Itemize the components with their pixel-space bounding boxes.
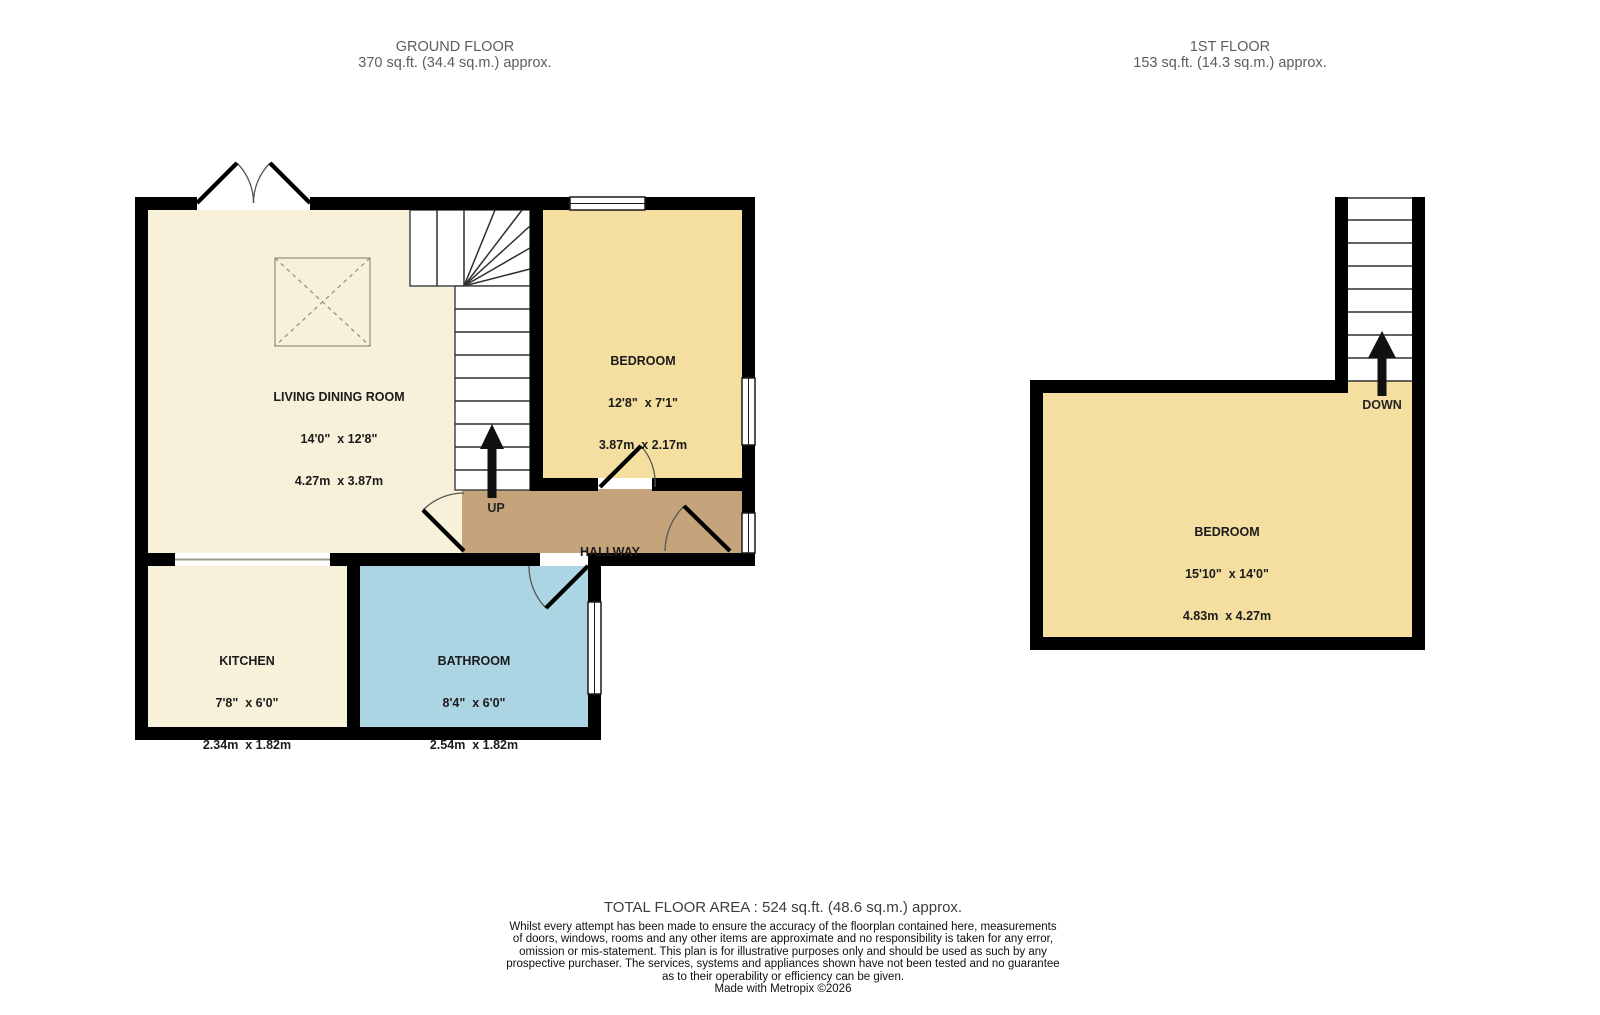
room-size-metric: 2.54m x 1.82m xyxy=(324,738,624,752)
room-size-imperial: 8'4" x 6'0" xyxy=(324,696,624,710)
hallway-label: HALLWAY xyxy=(460,517,760,587)
room-size-imperial: 14'0" x 12'8" xyxy=(189,432,489,446)
french-doors xyxy=(197,163,310,203)
room-size-metric: 4.83m x 4.27m xyxy=(1077,609,1377,623)
room-name: LIVING DINING ROOM xyxy=(189,390,489,404)
ground-floor-subtitle: 370 sq.ft. (34.4 sq.m.) approx. xyxy=(255,56,655,72)
disclaimer-line: of doors, windows, rooms and any other i… xyxy=(383,933,1183,945)
first-bedroom-label: BEDROOM 15'10" x 14'0" 4.83m x 4.27m xyxy=(1077,497,1377,651)
room-size-metric: 4.27m x 3.87m xyxy=(189,474,489,488)
floorplan-page: GROUND FLOOR 370 sq.ft. (34.4 sq.m.) app… xyxy=(0,0,1600,1015)
metropix-credit: Made with Metropix ©2026 xyxy=(383,983,1183,995)
disclaimer-line: omission or mis-statement. This plan is … xyxy=(383,946,1183,958)
disclaimer-line: as to their operability or efficiency ca… xyxy=(383,971,1183,983)
footer: TOTAL FLOOR AREA : 524 sq.ft. (48.6 sq.m… xyxy=(383,899,1183,995)
room-size-imperial: 15'10" x 14'0" xyxy=(1077,567,1377,581)
room-size-metric: 3.87m x 2.17m xyxy=(493,438,793,452)
disclaimer-line: prospective purchaser. The services, sys… xyxy=(383,958,1183,970)
ground-bedroom-label: BEDROOM 12'8" x 7'1" 3.87m x 2.17m xyxy=(493,326,793,480)
first-floor-title: 1ST FLOOR 153 sq.ft. (14.3 sq.m.) approx… xyxy=(1030,40,1430,71)
room-name: BEDROOM xyxy=(493,354,793,368)
room-name: BEDROOM xyxy=(1077,525,1377,539)
first-floor-title-line: 1ST FLOOR xyxy=(1030,40,1430,56)
down-label: DOWN xyxy=(1332,398,1432,412)
up-label: UP xyxy=(446,501,546,515)
ground-floor-title: GROUND FLOOR 370 sq.ft. (34.4 sq.m.) app… xyxy=(255,40,655,71)
bedroom-top-window xyxy=(570,197,645,210)
room-name: BATHROOM xyxy=(324,654,624,668)
room-name: HALLWAY xyxy=(460,545,760,559)
disclaimer-line: Whilst every attempt has been made to en… xyxy=(383,921,1183,933)
living-dining-room-label: LIVING DINING ROOM 14'0" x 12'8" 4.27m x… xyxy=(189,362,489,516)
ground-floor-title-line: GROUND FLOOR xyxy=(255,40,655,56)
bathroom-label: BATHROOM 8'4" x 6'0" 2.54m x 1.82m xyxy=(324,626,624,780)
room-size-imperial: 12'8" x 7'1" xyxy=(493,396,793,410)
total-floor-area: TOTAL FLOOR AREA : 524 sq.ft. (48.6 sq.m… xyxy=(383,899,1183,916)
first-floor-subtitle: 153 sq.ft. (14.3 sq.m.) approx. xyxy=(1030,56,1430,72)
